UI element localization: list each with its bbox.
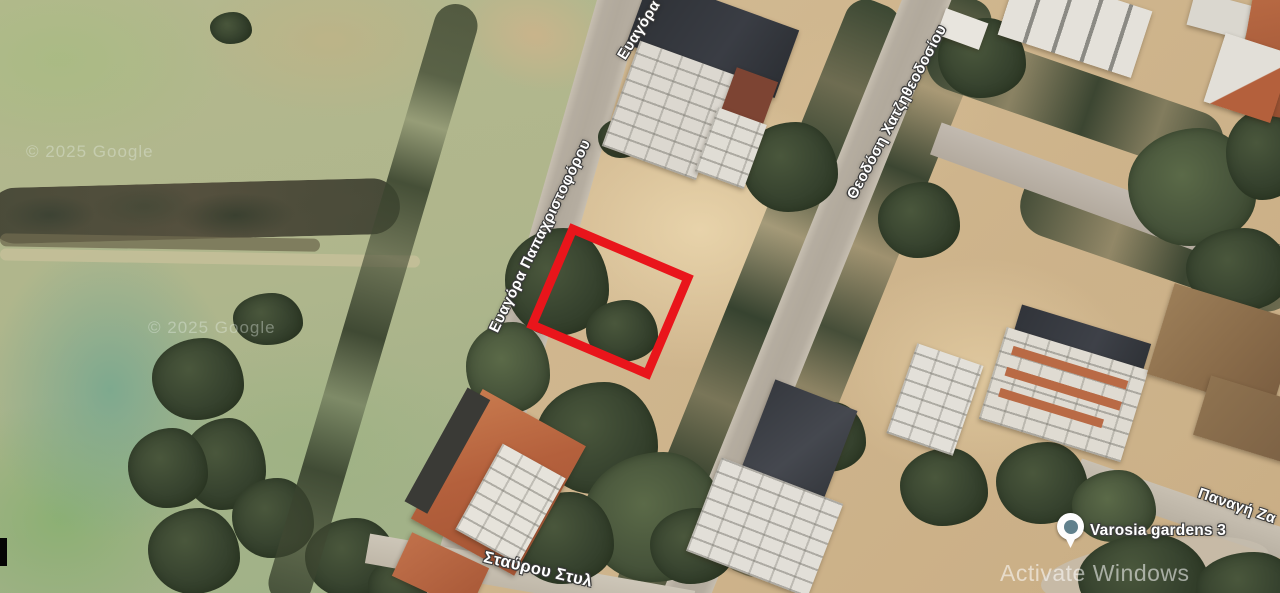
varosia-gardens-label[interactable]: Varosia gardens 3 [1090, 522, 1226, 540]
pin-tail [1065, 536, 1077, 548]
tree-cluster [128, 428, 208, 508]
tree-cluster [148, 508, 240, 593]
satellite-map-canvas[interactable]: © 2025 Google © 2025 Google Activate Win… [0, 0, 1280, 593]
tree-cluster [878, 182, 960, 258]
google-watermark: © 2025 Google [148, 318, 276, 338]
tree-cluster [210, 12, 252, 44]
pin-inner-dot [1064, 520, 1078, 534]
image-artifact [0, 538, 7, 566]
pin-head-icon [1057, 513, 1084, 540]
activate-windows-watermark: Activate Windows [1000, 560, 1190, 587]
tree-cluster [900, 448, 988, 526]
varosia-gardens-pin[interactable] [1057, 513, 1084, 549]
tree-cluster [152, 338, 244, 420]
google-watermark: © 2025 Google [26, 142, 154, 162]
